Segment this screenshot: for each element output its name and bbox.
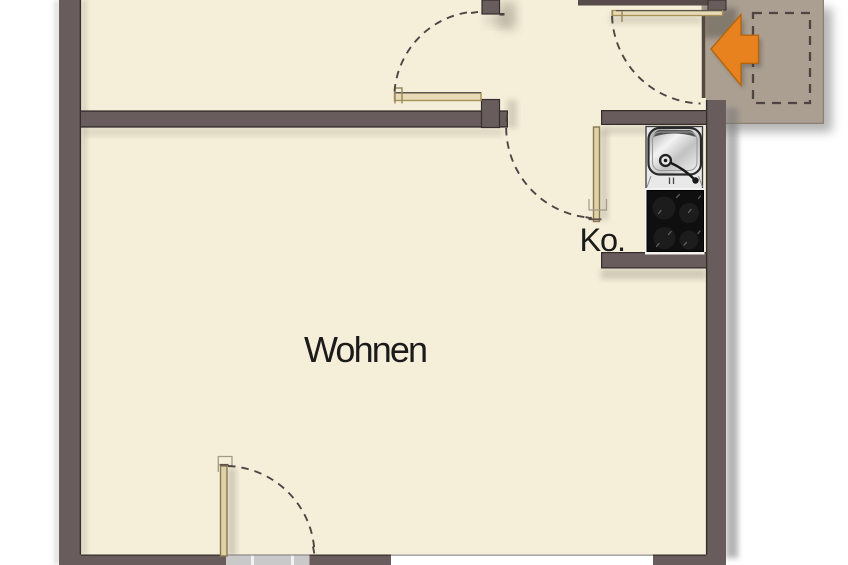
- svg-text:Wohnen: Wohnen: [304, 329, 428, 370]
- svg-text:Ko.: Ko.: [580, 222, 627, 258]
